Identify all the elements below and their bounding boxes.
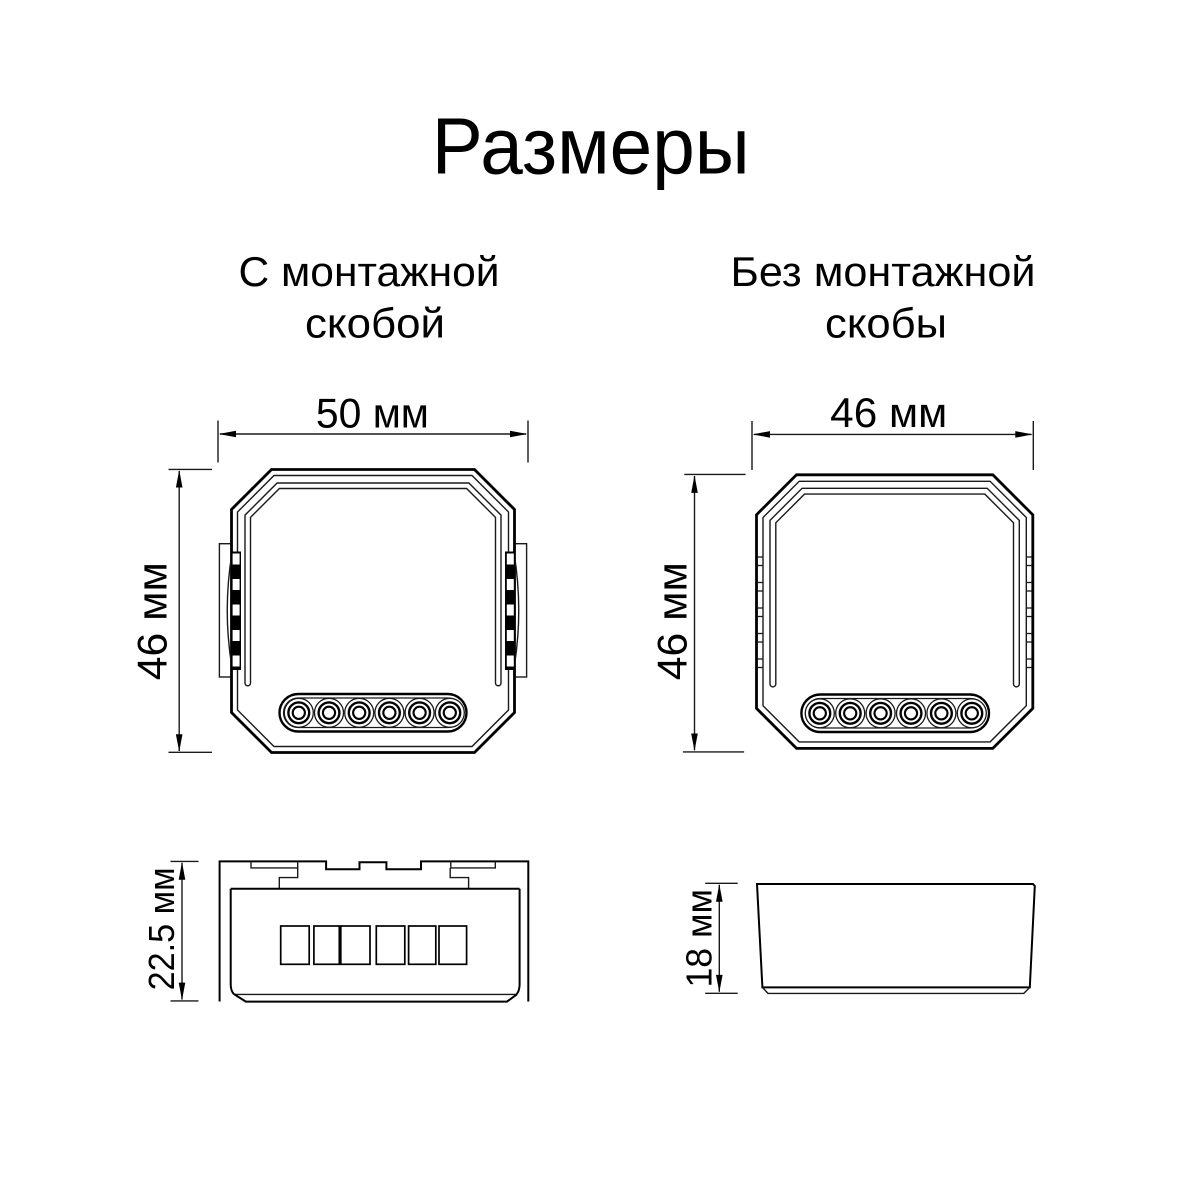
svg-text:С монтажной: С монтажной: [239, 248, 500, 295]
svg-text:скобой: скобой: [305, 300, 445, 347]
svg-text:скобы: скобы: [825, 300, 947, 347]
svg-text:Без монтажной: Без монтажной: [731, 248, 1036, 295]
svg-text:22.5 мм: 22.5 мм: [141, 867, 182, 990]
svg-text:46 мм: 46 мм: [830, 389, 947, 436]
svg-text:18 мм: 18 мм: [679, 889, 720, 988]
svg-text:Размеры: Размеры: [432, 101, 750, 190]
svg-text:50 мм: 50 мм: [316, 390, 429, 437]
svg-text:46 мм: 46 мм: [128, 562, 175, 680]
svg-text:46 мм: 46 мм: [648, 562, 695, 680]
